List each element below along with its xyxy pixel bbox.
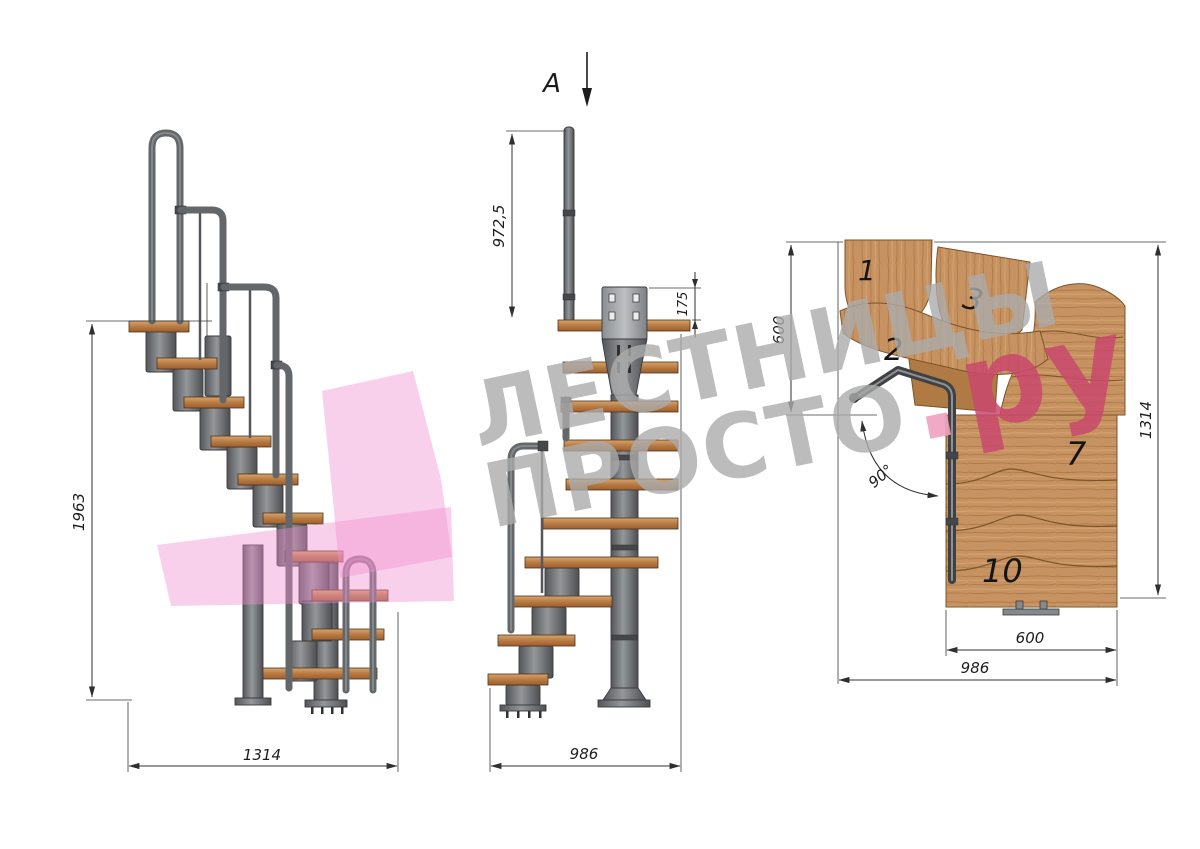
dim-plate-label: 175 (676, 292, 691, 317)
dim-tread-label: 600 (1016, 629, 1045, 647)
section-label: А (541, 69, 561, 99)
handrail-post (564, 127, 574, 323)
dim-handrail-label: 972,5 (490, 205, 508, 248)
dim-width-label: 1314 (243, 746, 281, 764)
stair-modules (146, 330, 332, 681)
column-base-plate (305, 700, 347, 707)
dim-plan-width-label: 986 (961, 659, 990, 677)
dim-height-label: 1963 (70, 493, 88, 531)
column-base-plate (598, 700, 650, 707)
column-base-plate (235, 698, 271, 705)
step-number-7: 7 (1066, 435, 1087, 473)
step-number-10: 10 (982, 552, 1023, 590)
staircase-technical-drawing: 1963 1314 А (0, 0, 1200, 849)
section-arrowhead (582, 88, 592, 107)
dim-right-label: 1314 (1137, 401, 1155, 439)
dim-front-width-label: 986 (570, 745, 599, 763)
